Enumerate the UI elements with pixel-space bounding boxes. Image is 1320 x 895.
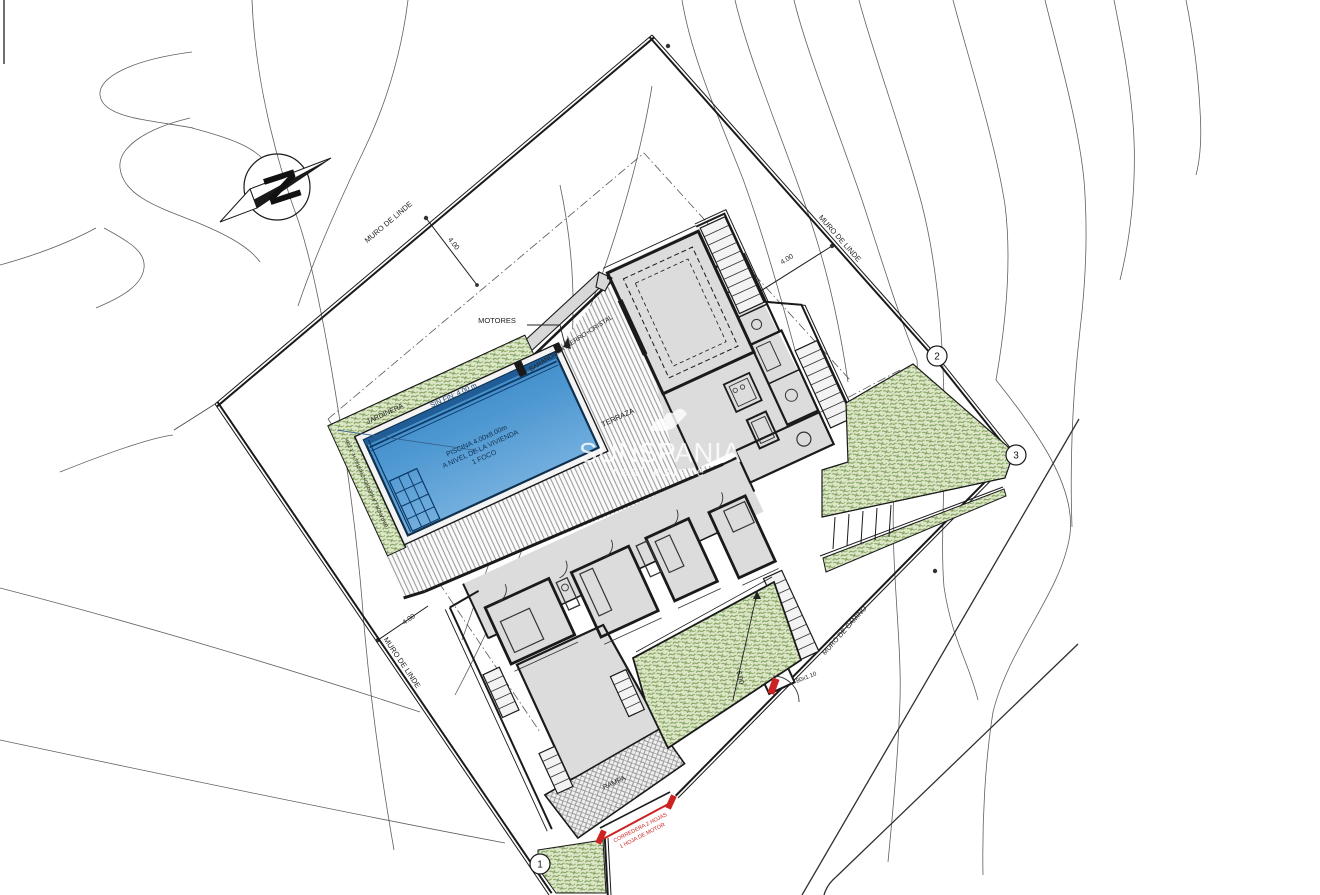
svg-text:real estate: real estate	[613, 464, 707, 479]
svg-text:1: 1	[537, 860, 543, 871]
svg-text:3: 3	[1013, 451, 1019, 462]
svg-text:MOTORES: MOTORES	[478, 316, 516, 325]
svg-text:2: 2	[934, 352, 940, 363]
